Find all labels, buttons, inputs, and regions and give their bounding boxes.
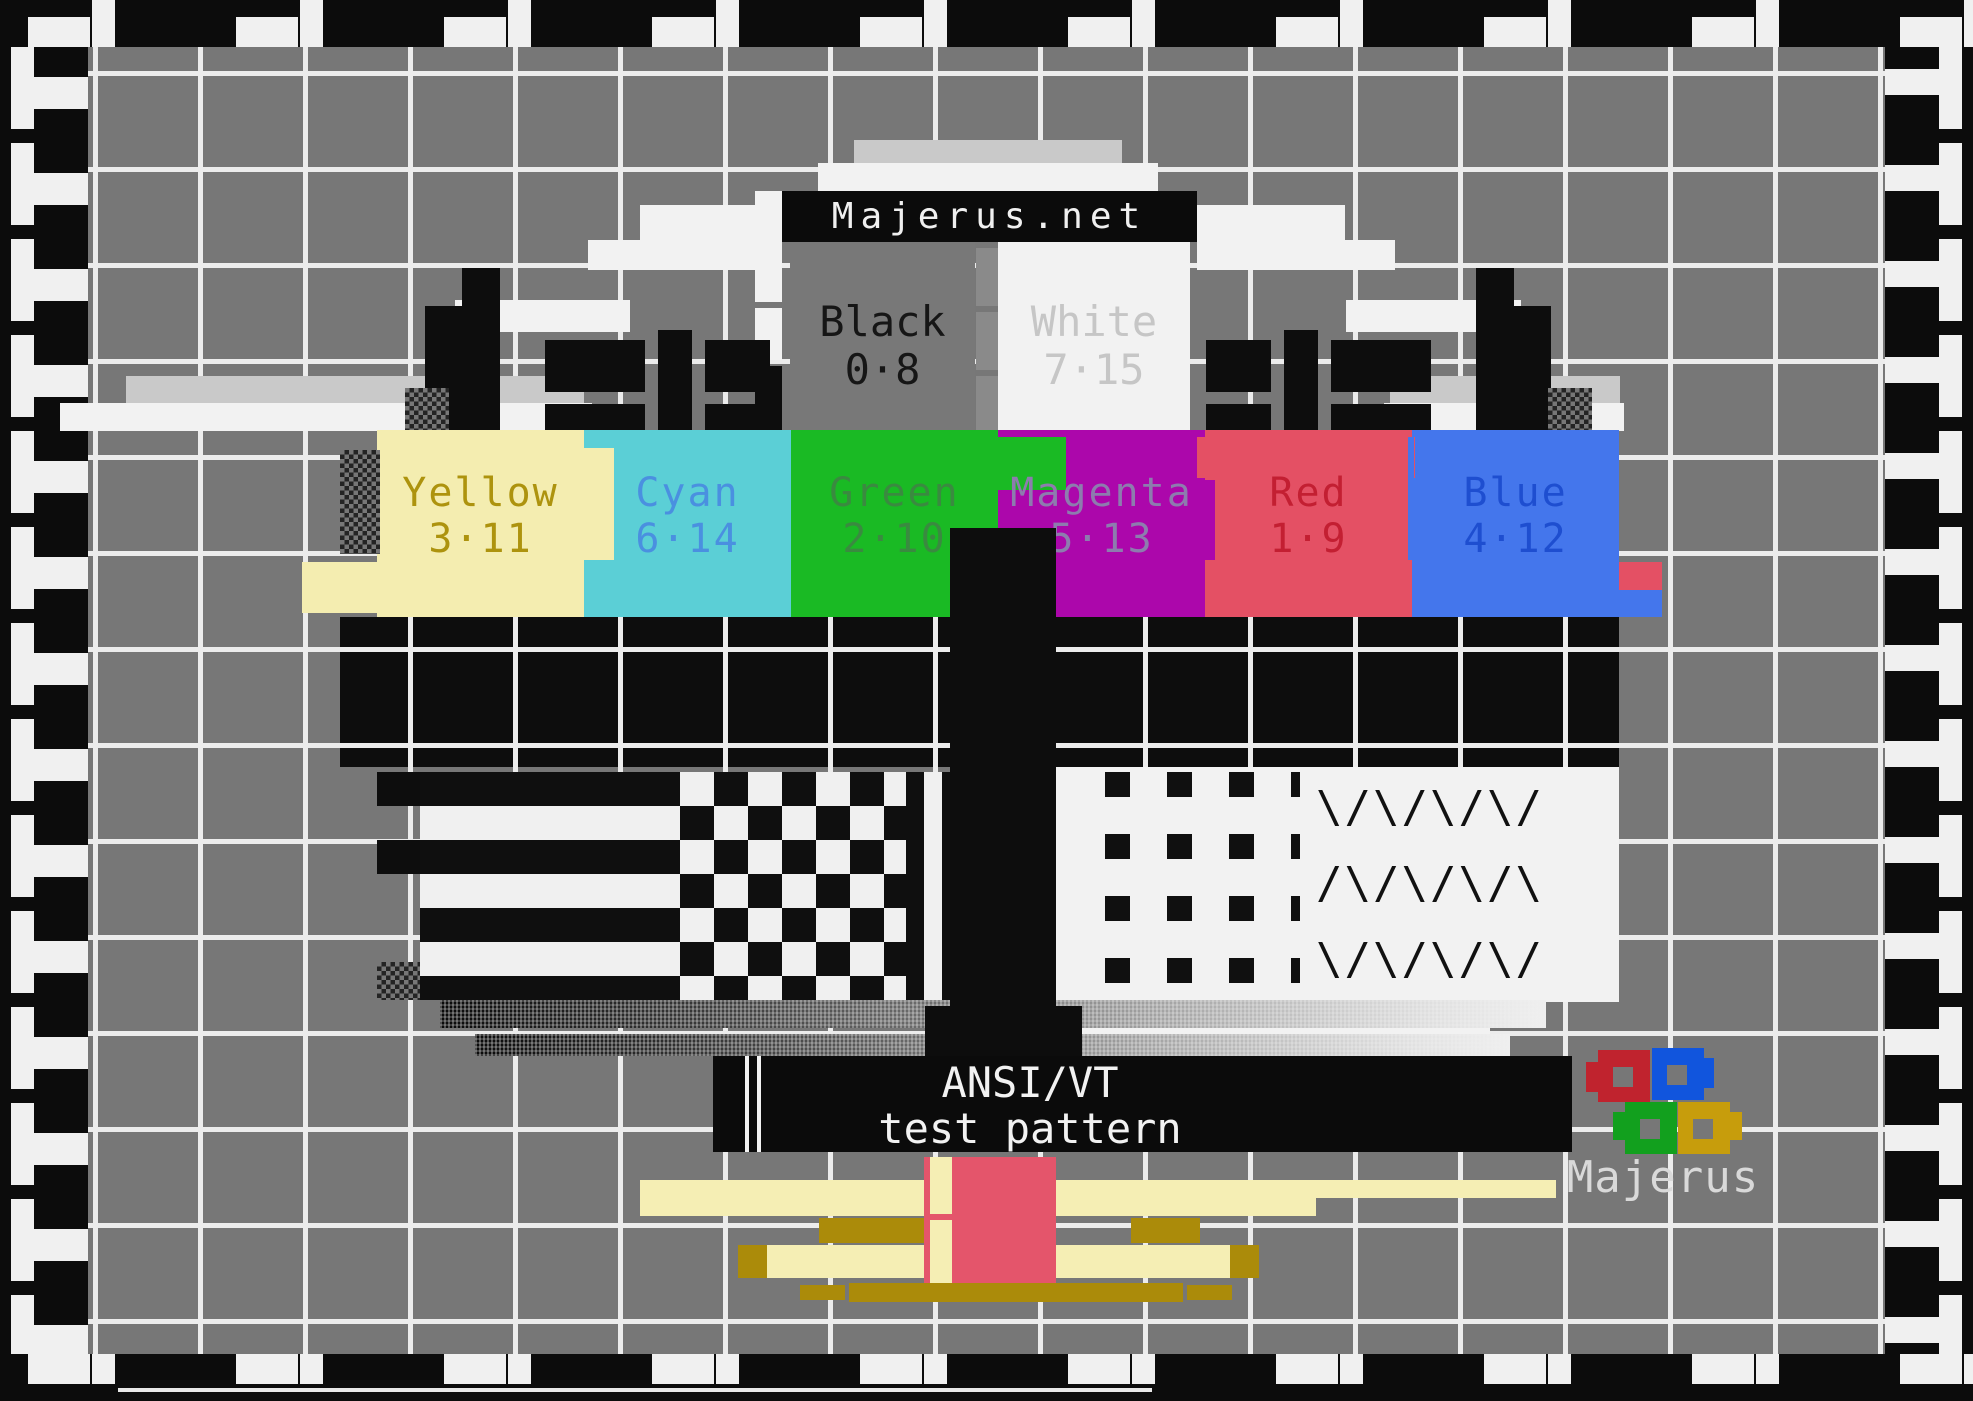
logo-tab [1704, 1058, 1714, 1088]
red-right-strip [1619, 562, 1662, 590]
bar-code: 6·14 [635, 516, 739, 562]
black-reference-code: 0·8 [845, 346, 921, 394]
logo-square-hole [1640, 1119, 1660, 1139]
logo-tab [1730, 1112, 1742, 1140]
bar-code: 3·11 [428, 516, 532, 562]
checkerboard-pattern [680, 772, 906, 1000]
blue-right-strip [1619, 590, 1662, 617]
center-bar [950, 528, 1056, 1056]
gold-base-square [800, 1285, 845, 1300]
caption-line2: test pattern [878, 1106, 1181, 1152]
test-pattern-screen: Majerus.net Black 0·8 White 7·15 Yellow … [0, 0, 1973, 1401]
bar-code: 4·12 [1463, 516, 1567, 562]
title-bar: Majerus.net [782, 191, 1197, 242]
vertical-bars-pattern [906, 772, 950, 1000]
wing-upper-right [1316, 1180, 1556, 1198]
logo-tab [1613, 1112, 1625, 1140]
wing-gold-right [1131, 1218, 1200, 1243]
wing-cap-right [1230, 1245, 1259, 1278]
circle-edge-block [377, 772, 420, 806]
cyan-tab [736, 448, 772, 560]
logo-square-gold [1678, 1102, 1730, 1154]
white-reference-label: White [1031, 298, 1157, 346]
arc-step [818, 163, 1158, 191]
stripe-pattern [420, 772, 680, 1000]
caption-bar-line [745, 1056, 749, 1152]
bar-label: Red [1269, 470, 1347, 516]
edge-cell [755, 248, 782, 302]
arc-step [1197, 240, 1395, 270]
castellation-block [705, 404, 770, 430]
castellation-block [705, 340, 770, 392]
logo-square-hole [1613, 1067, 1633, 1087]
arc-step [588, 240, 782, 270]
bar-label: Magenta [1010, 470, 1193, 516]
arc-band [126, 376, 584, 403]
yellow-tab [584, 448, 614, 560]
bar-code: 1·9 [1269, 516, 1347, 562]
dither-square [405, 388, 449, 430]
calibration-border-top-tabs [0, 0, 1973, 17]
logo-tab [1586, 1062, 1598, 1092]
gold-base-square [1187, 1285, 1232, 1300]
wing-gold-left [819, 1218, 924, 1243]
diagonal-pattern: \/\/\/\/ /\/\/\/\ \/\/\/\/ [1300, 770, 1560, 1000]
dot-pattern [1068, 772, 1300, 1000]
bottom-hairline [118, 1388, 1152, 1392]
dither-square [377, 962, 420, 1000]
yellow-left-extension [302, 562, 377, 613]
edge-cell [976, 312, 998, 370]
wing-cap-left [738, 1245, 767, 1278]
bar-label: Yellow [402, 470, 559, 516]
calibration-border-right [1885, 0, 1973, 1401]
border-dashes-column [34, 47, 88, 1354]
caption-bar: ANSI/VT test pattern [713, 1056, 1572, 1152]
bar-code: 5·13 [1049, 516, 1153, 562]
arc-step [854, 140, 1122, 163]
calibration-border-bottom-dashes [0, 1354, 1973, 1384]
castellation-block [545, 340, 645, 392]
red-block-stripe [930, 1220, 952, 1283]
castellation-block [1284, 330, 1318, 430]
bar-label: Blue [1463, 470, 1567, 516]
castellation-block [545, 404, 645, 430]
calibration-border-bottom-edge [0, 1384, 1973, 1401]
center-bar-tab [1056, 1006, 1082, 1056]
castellation-block [1331, 340, 1431, 392]
dither-square [340, 450, 380, 554]
black-reference-label: Black [819, 298, 945, 346]
castellation-block [1514, 306, 1551, 430]
color-bar-blue: Blue 4·12 [1412, 430, 1619, 617]
castellation-block [1331, 404, 1431, 430]
gold-base-bar [849, 1283, 1183, 1302]
logo-square-blue [1652, 1048, 1704, 1100]
castellation-block [462, 268, 500, 430]
white-reference-code: 7·15 [1043, 346, 1144, 394]
center-bar-tab [925, 1006, 950, 1056]
color-bar-yellow: Yellow 3·11 [377, 430, 584, 617]
bar-code: 2·10 [842, 516, 946, 562]
logo-wordmark: Majerus [1548, 1152, 1778, 1203]
circle-edge-block [377, 840, 420, 874]
blue-divider-line [1408, 437, 1414, 560]
black-reference-cell: Black 0·8 [790, 242, 975, 430]
red-block-stripe [930, 1157, 952, 1214]
dither-square [1548, 388, 1592, 430]
white-reference-cell: White 7·15 [998, 242, 1190, 430]
edge-cell [976, 248, 998, 306]
logo-square-hole [1693, 1119, 1713, 1139]
border-blocks-column [1939, 47, 1962, 1354]
diagonal-row: \/\/\/\/ [1300, 770, 1560, 846]
border-blocks-column [11, 47, 34, 1354]
castellation-block [1206, 404, 1271, 430]
castellation-block [1206, 340, 1271, 392]
caption-bar-line [757, 1056, 761, 1152]
arc-step [1197, 205, 1345, 240]
logo-square-hole [1667, 1065, 1687, 1085]
edge-cell [976, 376, 998, 430]
diagonal-row: /\/\/\/\ [1300, 846, 1560, 922]
arc-band [60, 403, 592, 431]
title-text: Majerus.net [832, 196, 1147, 237]
bar-label: Green [829, 470, 959, 516]
calibration-border-top-dashes [0, 17, 1973, 47]
border-dashes-column [1885, 47, 1939, 1354]
castellation-block [1476, 268, 1514, 430]
caption-text: ANSI/VT test pattern [790, 1060, 1270, 1152]
logo-square-green [1625, 1102, 1677, 1154]
calibration-border-left [0, 0, 88, 1401]
caption-line1: ANSI/VT [941, 1060, 1118, 1106]
bar-label: Cyan [635, 470, 739, 516]
logo-square-red [1598, 1050, 1650, 1102]
edge-cell [755, 191, 782, 242]
castellation-block [658, 330, 692, 430]
